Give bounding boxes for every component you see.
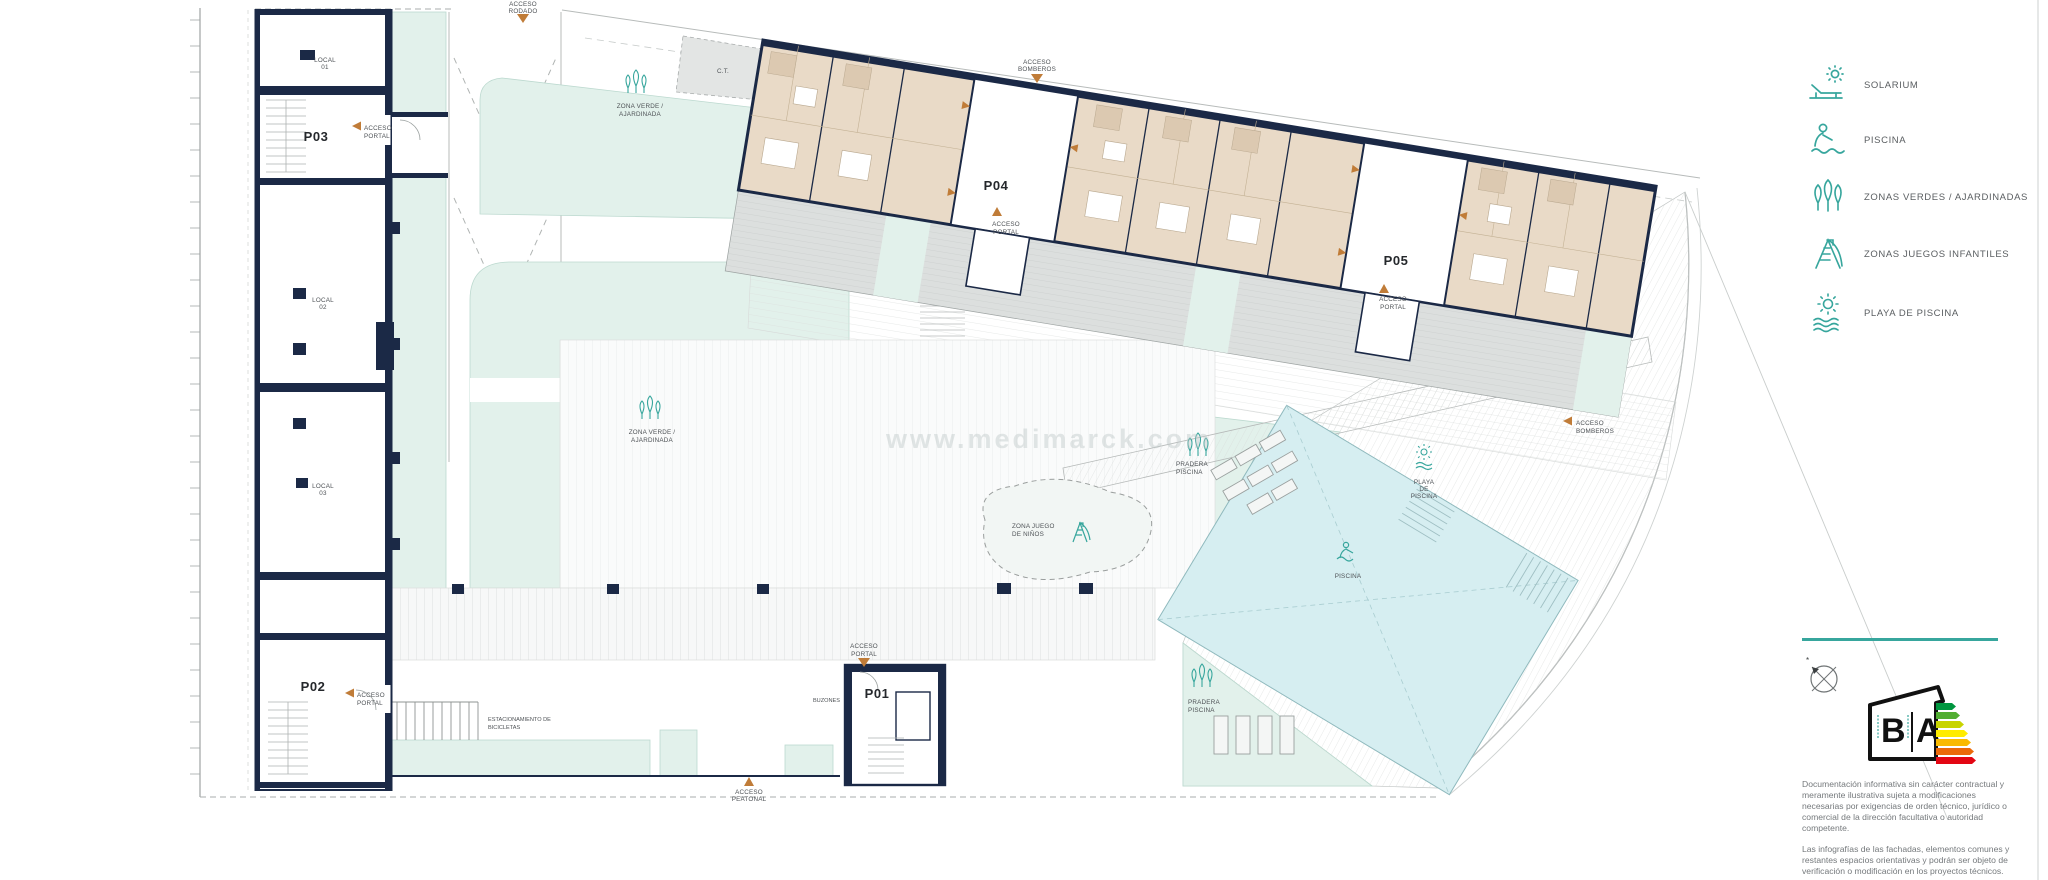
portal-03-label: P03 [304, 129, 329, 144]
estacionamiento-label: ESTACIONAMIENTO DE [488, 717, 551, 723]
svg-text:02: 02 [319, 304, 327, 311]
svg-text:PORTAL: PORTAL [357, 700, 383, 707]
pradera-piscina-2-label: PRADERA [1188, 699, 1220, 706]
svg-text:BICICLETAS: BICICLETAS [488, 725, 520, 731]
legend-item-juegos: ZONAS JUEGOS INFANTILES [1808, 234, 2009, 274]
legend-item-playa: PLAYA DE PISCINA [1808, 293, 1959, 333]
portal-05-label: P05 [1384, 253, 1409, 268]
legend-label: PLAYA DE PISCINA [1864, 308, 1959, 319]
acceso-portal-01-label: ACCESO [850, 643, 878, 650]
legal-disclaimer: Documentación informativa sin carácter c… [1802, 779, 2018, 880]
pool-icon [1808, 120, 1848, 160]
watermark: www.medimarck.com [886, 424, 1212, 455]
svg-text:PISCINA: PISCINA [1411, 493, 1438, 500]
playa-piscina-label: PLAYA [1414, 479, 1435, 486]
portal-01-core [845, 665, 945, 785]
green-zones-icon [1808, 177, 1848, 217]
playground-icon [1808, 234, 1848, 274]
pool-beach-icon [1808, 293, 1848, 333]
disclaimer-paragraph-1: Documentación informativa sin carácter c… [1802, 779, 2018, 834]
piscina-label: PISCINA [1335, 573, 1362, 580]
portal-01-label: P01 [865, 686, 890, 701]
energy-letter-b: B [1881, 712, 1906, 750]
svg-text:DE: DE [1419, 486, 1428, 493]
legend-item-zonas-verdes: ZONAS VERDES / AJARDINADAS [1808, 177, 2028, 217]
legend-label: ZONAS JUEGOS INFANTILES [1864, 249, 2009, 260]
disclaimer-paragraph-2: Las infografías de las fachadas, element… [1802, 844, 2018, 877]
pradera-piscina-1-label: PRADERA [1176, 461, 1208, 468]
energy-rating-badge: B A [1856, 667, 1976, 767]
svg-text:01: 01 [321, 64, 329, 71]
local-01-label: LOCAL [314, 57, 336, 64]
svg-text:*: * [1806, 656, 1809, 665]
site-plan-page: P01 P02 P03 P04 P05 LOCAL 01 LOCAL 02 LO… [0, 0, 2048, 880]
svg-text:BOMBEROS: BOMBEROS [1018, 66, 1056, 73]
compass-icon: * [1802, 653, 1846, 701]
legend-item-solarium: SOLARIUM [1808, 65, 1918, 105]
svg-text:BOMBEROS: BOMBEROS [1576, 428, 1614, 435]
svg-text:PEATONAL: PEATONAL [732, 796, 767, 803]
acceso-bomberos-top-label: ACCESO [1023, 59, 1051, 66]
portal-02-label: P02 [301, 679, 326, 694]
page-edge-divider [2037, 0, 2039, 880]
ct-label: C.T. [717, 68, 729, 75]
svg-text:PORTAL: PORTAL [993, 229, 1019, 236]
legend-label: SOLARIUM [1864, 80, 1918, 91]
solarium-icon [1808, 65, 1848, 105]
svg-text:DE NIÑOS: DE NIÑOS [1012, 529, 1044, 538]
legend-item-piscina: PISCINA [1808, 120, 1906, 160]
acceso-portal-04-label: ACCESO [992, 221, 1020, 228]
svg-text:PISCINA: PISCINA [1176, 469, 1203, 476]
svg-text:PORTAL: PORTAL [851, 651, 877, 658]
green-zone-trees-icon-top [626, 70, 646, 93]
svg-text:PISCINA: PISCINA [1188, 707, 1215, 714]
acceso-portal-03-label: ACCESO [364, 125, 392, 132]
svg-text:RODADO: RODADO [509, 8, 538, 15]
acceso-peatonal-label: ACCESO [735, 789, 763, 796]
legend-label: PISCINA [1864, 135, 1906, 146]
buzones-label: BUZONES [813, 698, 840, 704]
zona-juego-label: ZONA JUEGO [1012, 523, 1055, 530]
svg-text:AJARDINADA: AJARDINADA [631, 437, 673, 444]
zona-verde-top-label: ZONA VERDE / [617, 103, 664, 110]
acceso-bomberos-right-label: ACCESO [1576, 420, 1604, 427]
legend-label: ZONAS VERDES / AJARDINADAS [1864, 192, 2028, 203]
svg-text:03: 03 [319, 490, 327, 497]
acceso-portal-05-label: ACCESO [1379, 296, 1407, 303]
energy-scale-bars [1936, 703, 1976, 764]
svg-text:PORTAL: PORTAL [364, 133, 390, 140]
acceso-rodado-label: ACCESO [509, 1, 537, 8]
local-03-label: LOCAL [312, 483, 334, 490]
svg-text:PORTAL: PORTAL [1380, 304, 1406, 311]
info-block: * B A Documentación infor [1802, 638, 2018, 880]
zona-verde-central-label: ZONA VERDE / [629, 429, 676, 436]
portal-04-label: P04 [984, 178, 1009, 193]
acceso-portal-02-label: ACCESO [357, 692, 385, 699]
svg-text:AJARDINADA: AJARDINADA [619, 111, 661, 118]
local-02-label: LOCAL [312, 297, 334, 304]
